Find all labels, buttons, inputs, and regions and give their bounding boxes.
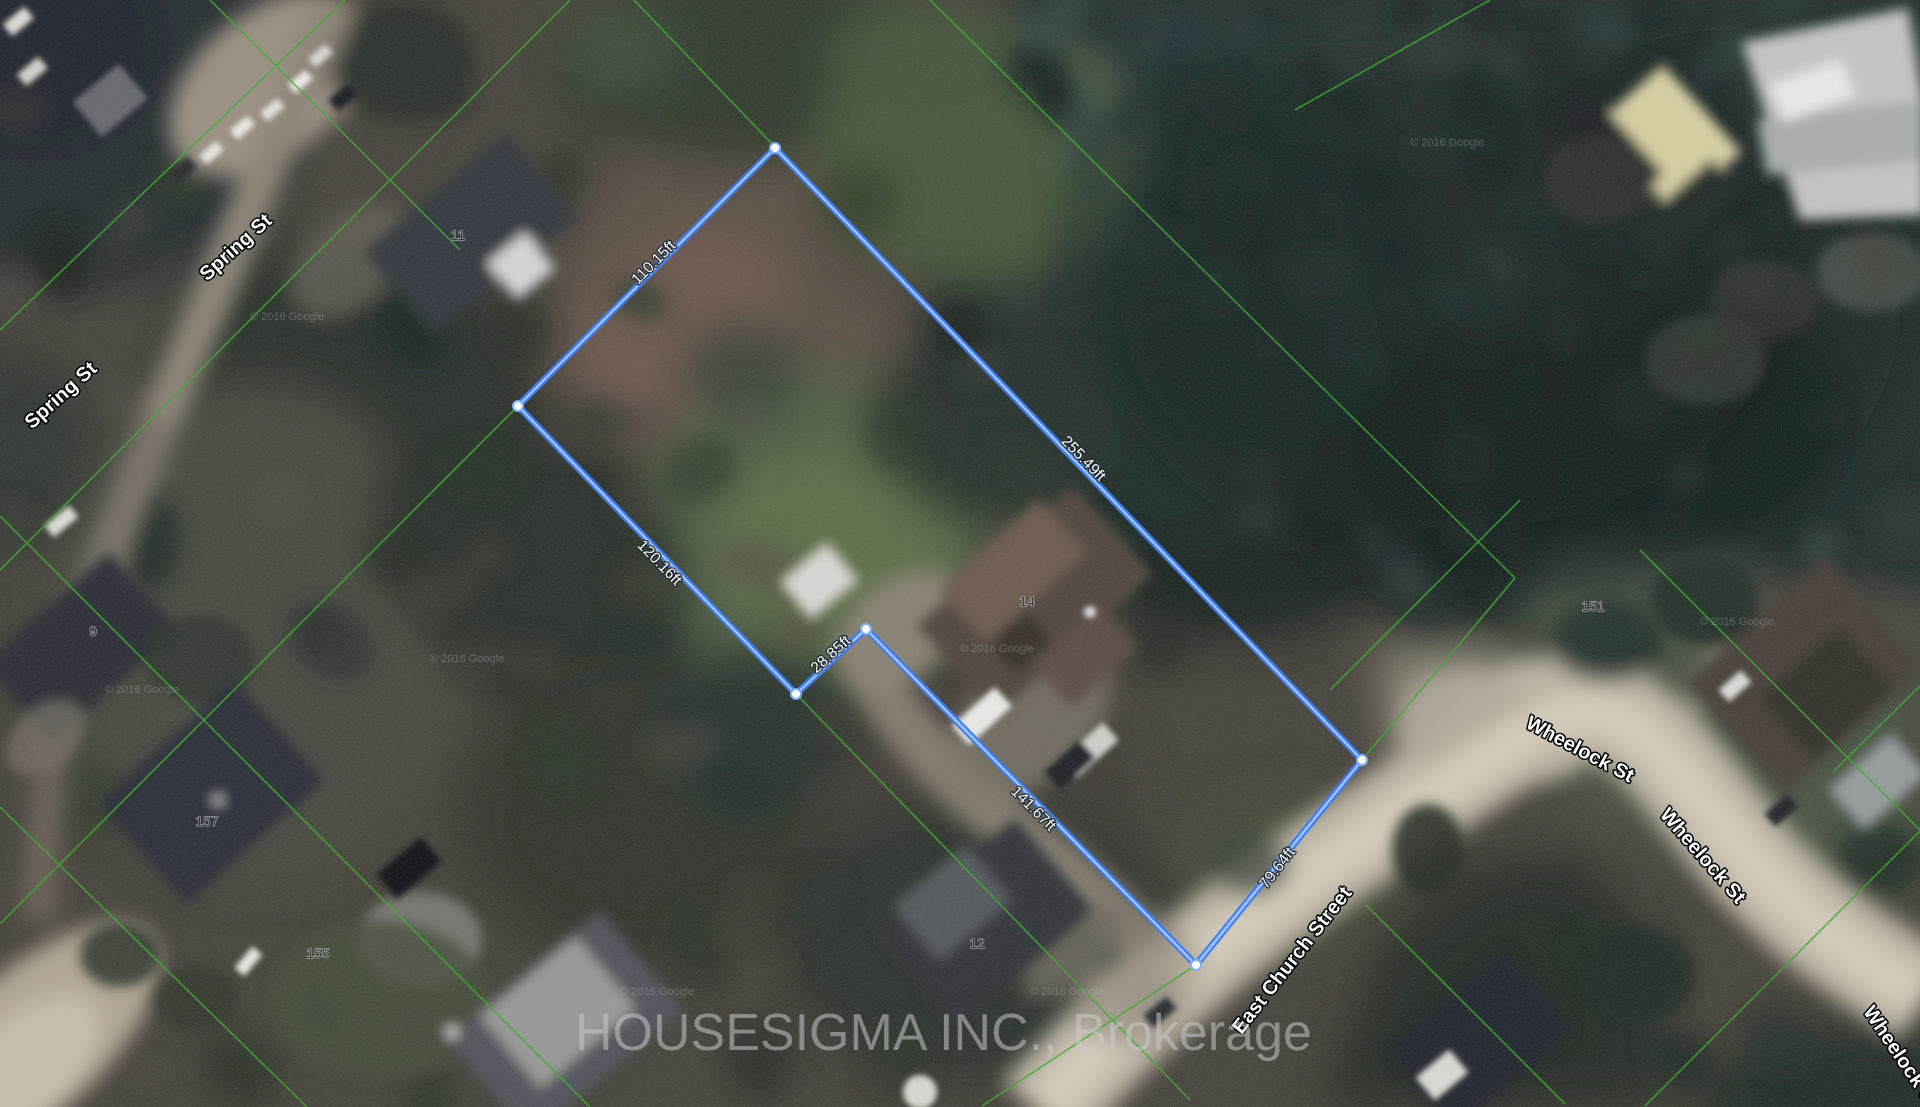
- svg-text:157: 157: [195, 813, 219, 829]
- svg-text:14: 14: [1019, 593, 1035, 609]
- svg-text:© 2016 Google: © 2016 Google: [430, 653, 504, 665]
- svg-text:© 2016 Google: © 2016 Google: [620, 986, 694, 998]
- svg-text:151: 151: [1581, 598, 1605, 614]
- svg-text:HOUSESIGMA INC., Brokerage: HOUSESIGMA INC., Brokerage: [575, 1004, 1312, 1062]
- svg-text:12: 12: [969, 935, 985, 951]
- svg-text:© 2016 Google: © 2016 Google: [1030, 986, 1104, 998]
- svg-text:© 2016 Google: © 2016 Google: [960, 643, 1034, 655]
- svg-text:© 2016 Google: © 2016 Google: [1700, 616, 1774, 628]
- svg-text:© 2016 Google: © 2016 Google: [1410, 137, 1484, 149]
- svg-text:© 2016 Google: © 2016 Google: [250, 311, 324, 323]
- svg-text:9: 9: [89, 623, 97, 639]
- svg-text:© 2016 Google: © 2016 Google: [105, 684, 179, 696]
- svg-text:11: 11: [451, 227, 466, 243]
- svg-text:155: 155: [306, 945, 330, 961]
